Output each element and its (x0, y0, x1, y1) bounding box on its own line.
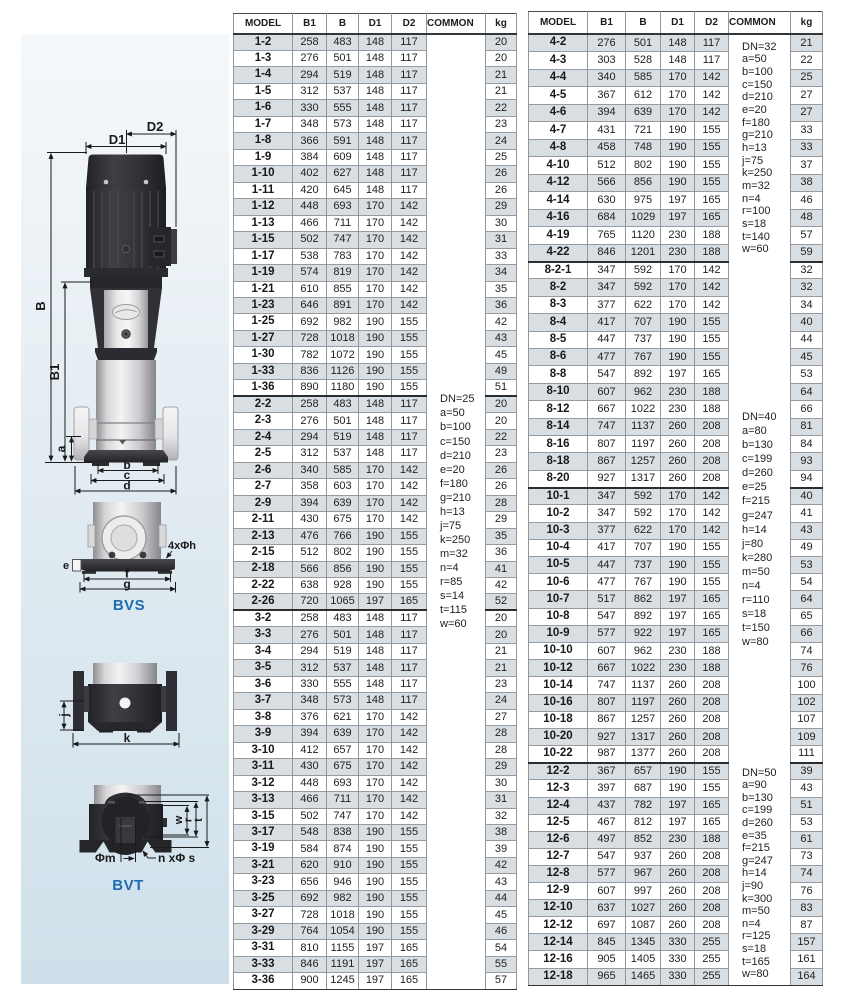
svg-text:t: t (193, 818, 205, 822)
svg-text:BVS: BVS (113, 597, 145, 614)
svg-text:B1: B1 (47, 364, 62, 381)
svg-text:D1: D1 (109, 132, 126, 147)
svg-text:j: j (57, 713, 71, 717)
svg-text:BVT: BVT (112, 877, 144, 894)
svg-text:k: k (124, 731, 131, 745)
svg-text:d: d (123, 479, 130, 493)
svg-text:e: e (63, 560, 69, 572)
svg-text:g: g (123, 577, 130, 591)
svg-text:a: a (54, 445, 68, 452)
svg-text:n xΦ s: n xΦ s (158, 851, 196, 865)
svg-text:B: B (33, 301, 48, 310)
svg-text:Φm: Φm (95, 851, 116, 865)
svg-text:4xΦh: 4xΦh (168, 540, 196, 552)
svg-text:D2: D2 (147, 119, 164, 134)
